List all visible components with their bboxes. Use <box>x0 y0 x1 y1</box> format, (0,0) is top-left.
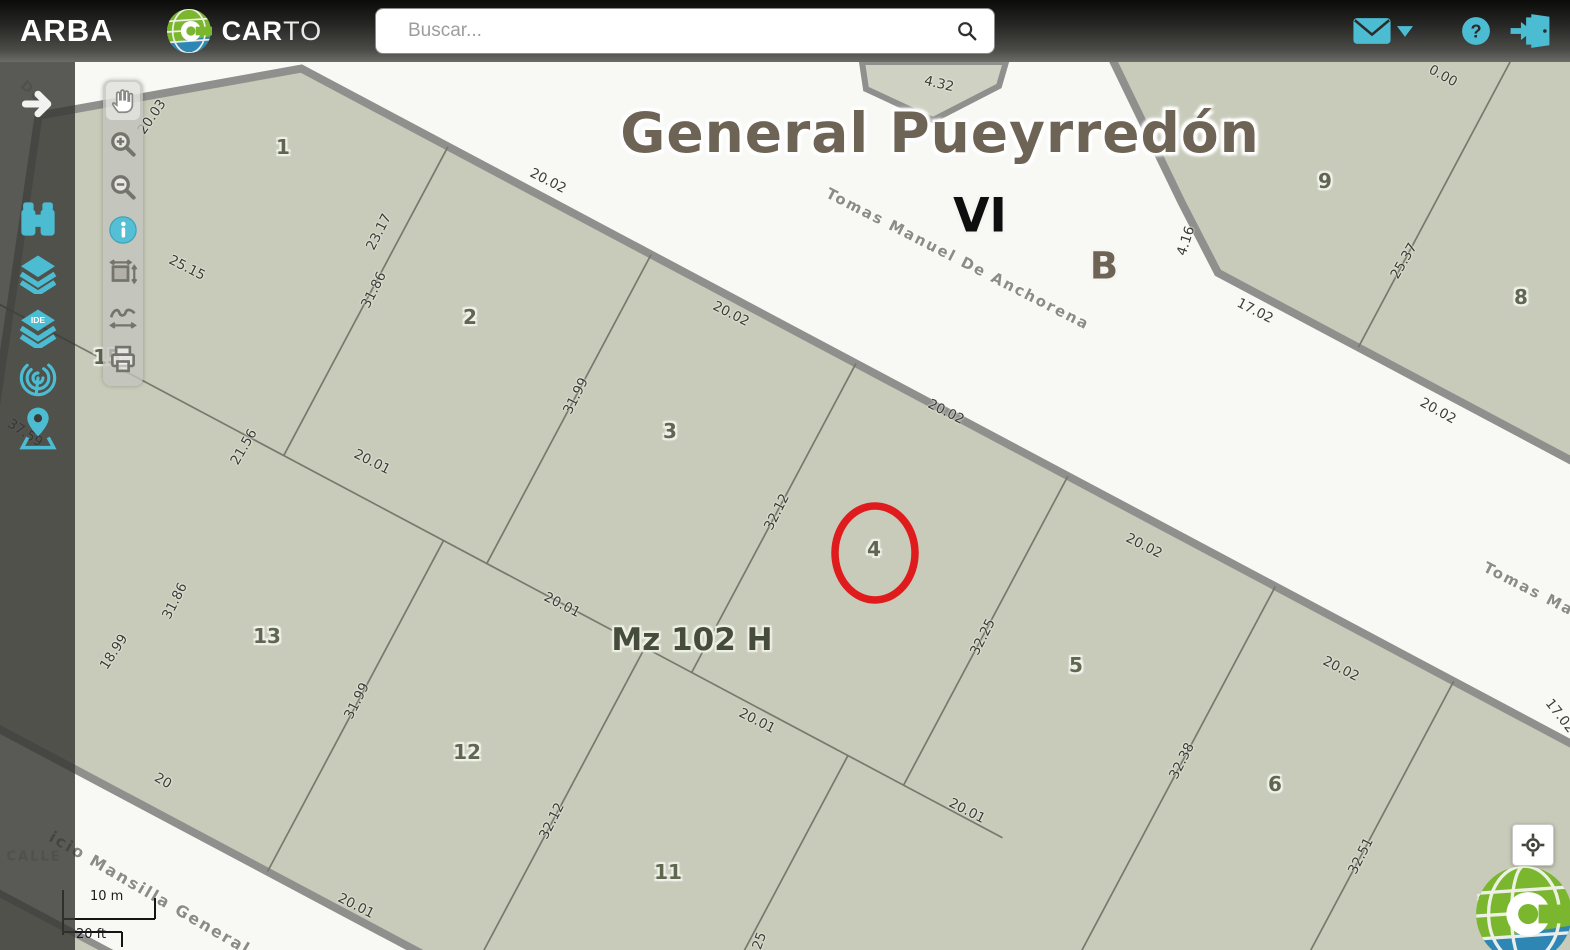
scale-imperial-label: 20 ft <box>76 927 106 942</box>
sidebar-expand-arrow[interactable] <box>0 90 75 118</box>
help-icon: ? <box>1461 16 1491 46</box>
tool-measure-path[interactable] <box>106 297 140 335</box>
tool-print[interactable] <box>106 340 140 378</box>
search-bar <box>375 8 995 54</box>
cadastral-map <box>0 62 1570 950</box>
fingerprint-icon <box>18 358 58 398</box>
layers-icon <box>16 254 60 294</box>
carto-globe-icon <box>1474 864 1570 950</box>
arba-logo: ARBA <box>20 13 114 49</box>
zoom-out-icon <box>108 172 138 202</box>
exit-door-icon <box>1508 11 1552 51</box>
tool-zoom-in[interactable] <box>106 125 140 163</box>
carto-wordmark-light: TO <box>283 16 322 46</box>
crosshair-icon <box>1520 832 1546 858</box>
measure-path-icon <box>108 301 138 331</box>
carto-logo <box>1474 864 1570 950</box>
map-toolbar <box>103 80 143 386</box>
measure-area-icon <box>108 258 138 288</box>
sidebar-item-search[interactable] <box>0 198 75 240</box>
sidebar-item-locate-parcel[interactable] <box>0 406 75 450</box>
arrow-right-icon <box>21 90 55 118</box>
search-input[interactable] <box>406 19 956 43</box>
carto-wordmark: CARTO <box>222 16 323 47</box>
tool-zoom-out[interactable] <box>106 168 140 206</box>
search-icon[interactable] <box>956 20 978 42</box>
map-canvas[interactable]: General Pueyrredón VI B Mz 102 H 20.0320… <box>0 62 1570 950</box>
carto-globe-icon-small <box>166 8 212 54</box>
help-button[interactable]: ? <box>1461 0 1491 62</box>
print-icon <box>108 344 138 374</box>
tool-measure-area[interactable] <box>106 254 140 292</box>
info-icon <box>108 215 138 245</box>
scale-metric-label: 10 m <box>90 889 123 904</box>
layers-ide-icon: IDE <box>16 308 60 348</box>
sidebar-item-layers[interactable] <box>0 254 75 294</box>
caret-down-icon <box>1397 26 1413 37</box>
mail-icon <box>1352 16 1392 46</box>
geolocate-button[interactable] <box>1512 824 1554 866</box>
hand-icon <box>108 86 138 116</box>
ide-badge: IDE <box>30 315 45 325</box>
binoculars-icon <box>17 198 59 240</box>
tool-info[interactable] <box>106 211 140 249</box>
tool-pan-hand[interactable] <box>106 82 140 120</box>
messages-menu[interactable] <box>1352 0 1413 62</box>
scale-bar: 10 m 20 ft <box>58 883 178 950</box>
top-bar: ARBA CARTO <box>0 0 1570 62</box>
sidebar-item-fingerprint[interactable] <box>0 358 75 398</box>
map-pin-icon <box>16 406 60 450</box>
help-glyph: ? <box>1470 21 1481 41</box>
left-sidebar: IDE <box>0 62 75 950</box>
sidebar-item-layers-ide[interactable]: IDE <box>0 308 75 348</box>
zoom-in-icon <box>108 129 138 159</box>
carto-wordmark-bold: CAR <box>222 16 284 46</box>
logout-button[interactable] <box>1508 0 1552 62</box>
